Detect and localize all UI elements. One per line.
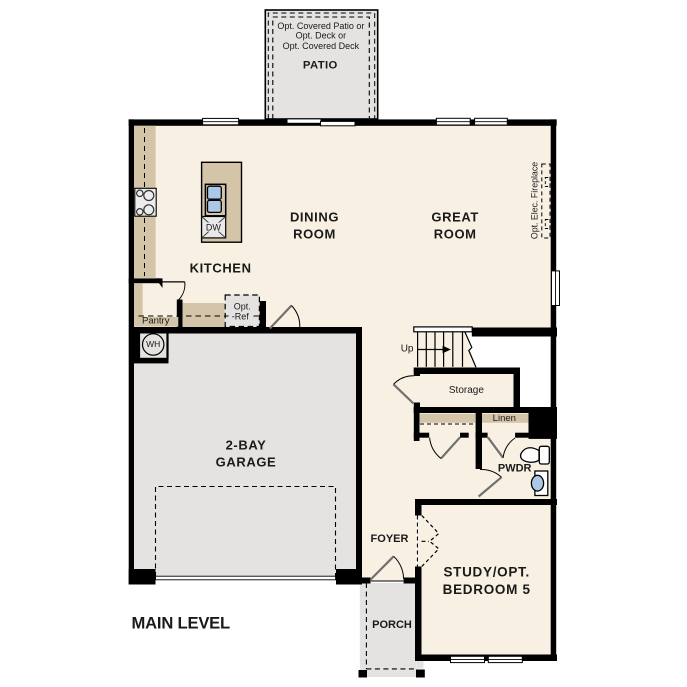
svg-text:Linen: Linen bbox=[493, 413, 516, 424]
svg-text:Opt. Covered Patio or: Opt. Covered Patio or bbox=[277, 21, 364, 31]
svg-text:Pantry: Pantry bbox=[142, 316, 170, 327]
svg-text:PWDR: PWDR bbox=[498, 463, 532, 475]
svg-text:MAIN LEVEL: MAIN LEVEL bbox=[132, 613, 231, 632]
svg-text:GARAGE: GARAGE bbox=[216, 454, 277, 469]
svg-text:DW: DW bbox=[206, 222, 221, 232]
svg-text:KITCHEN: KITCHEN bbox=[190, 261, 252, 276]
svg-text:FOYER: FOYER bbox=[371, 533, 409, 545]
svg-text:STUDY/OPT.: STUDY/OPT. bbox=[443, 564, 530, 579]
svg-text:-Ref: -Ref bbox=[232, 312, 250, 322]
svg-text:ROOM: ROOM bbox=[293, 227, 336, 242]
svg-text:Opt. Covered Deck: Opt. Covered Deck bbox=[283, 41, 360, 51]
svg-text:BEDROOM 5: BEDROOM 5 bbox=[443, 582, 531, 597]
svg-text:Up: Up bbox=[401, 344, 414, 355]
svg-text:Opt. Deck or: Opt. Deck or bbox=[296, 31, 347, 41]
svg-text:PATIO: PATIO bbox=[303, 60, 338, 72]
svg-text:Storage: Storage bbox=[449, 385, 484, 396]
svg-text:ROOM: ROOM bbox=[434, 227, 477, 242]
svg-text:GREAT: GREAT bbox=[431, 209, 479, 224]
svg-text:PORCH: PORCH bbox=[372, 619, 412, 631]
svg-text:Opt. Elec. Fireplace: Opt. Elec. Fireplace bbox=[530, 162, 540, 239]
svg-text:WH: WH bbox=[146, 339, 160, 349]
svg-text:2-BAY: 2-BAY bbox=[226, 438, 267, 453]
svg-text:DINING: DINING bbox=[290, 209, 339, 224]
svg-text:Opt.: Opt. bbox=[234, 302, 251, 312]
